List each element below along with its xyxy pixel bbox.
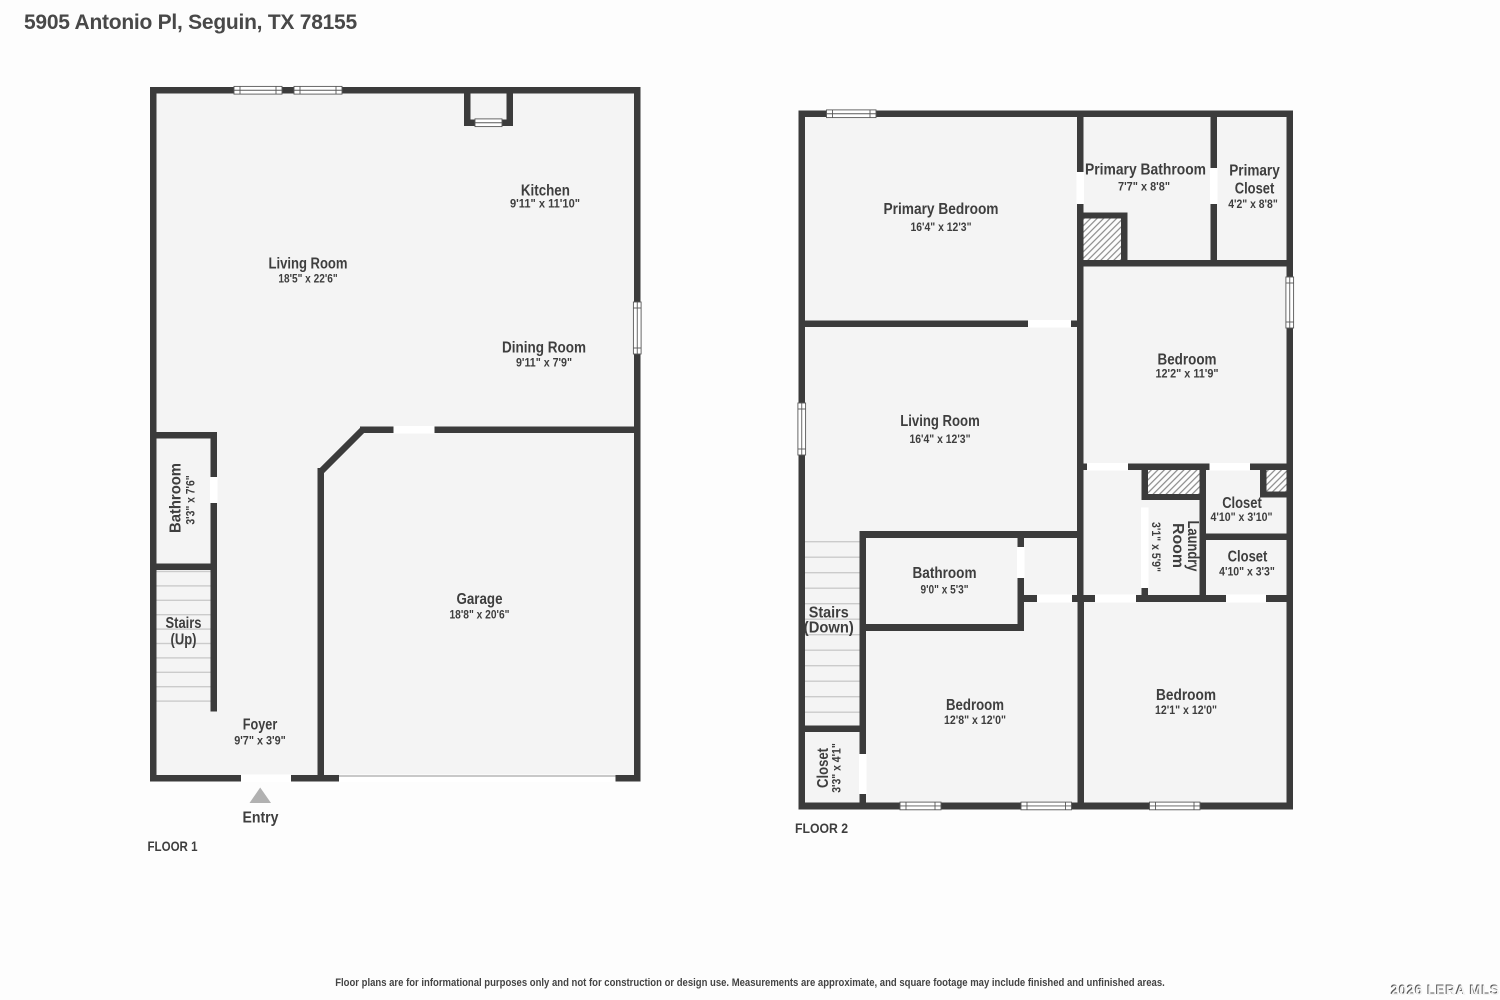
svg-text:7'7" x 8'8": 7'7" x 8'8" — [1118, 182, 1170, 194]
svg-text:Foyer: Foyer — [243, 717, 278, 734]
svg-text:4'10" x 3'10": 4'10" x 3'10" — [1211, 512, 1273, 524]
svg-text:Living Room: Living Room — [269, 256, 348, 273]
svg-text:12'8" x 12'0": 12'8" x 12'0" — [944, 715, 1006, 727]
svg-text:Primary: Primary — [1229, 163, 1280, 180]
svg-text:3'1" x 5'9": 3'1" x 5'9" — [1149, 522, 1161, 572]
svg-text:Garage: Garage — [457, 591, 503, 608]
svg-text:FLOOR 2: FLOOR 2 — [795, 820, 848, 836]
svg-text:Dining Room: Dining Room — [502, 339, 586, 356]
svg-text:Closet: Closet — [1228, 549, 1268, 566]
svg-text:3'3" x 4'1": 3'3" x 4'1" — [832, 743, 844, 793]
svg-text:Bathroom: Bathroom — [913, 565, 977, 582]
svg-text:16'4" x 12'3": 16'4" x 12'3" — [911, 222, 972, 234]
svg-text:9'7" x 3'9": 9'7" x 3'9" — [234, 736, 286, 748]
svg-text:12'2" x 11'9": 12'2" x 11'9" — [1156, 369, 1219, 381]
svg-text:3'3" x 7'6": 3'3" x 7'6" — [186, 475, 198, 524]
svg-text:18'8" x 20'6": 18'8" x 20'6" — [450, 609, 510, 621]
svg-text:Bathroom: Bathroom — [168, 463, 185, 533]
svg-text:9'0" x 5'3": 9'0" x 5'3" — [921, 585, 969, 597]
svg-text:4'2" x 8'8": 4'2" x 8'8" — [1228, 199, 1278, 211]
svg-text:Primary Bathroom: Primary Bathroom — [1085, 162, 1206, 179]
svg-text:Kitchen: Kitchen — [521, 183, 570, 200]
svg-text:Entry: Entry — [243, 810, 279, 827]
svg-text:(Down): (Down) — [804, 620, 854, 637]
svg-text:Bedroom: Bedroom — [1156, 687, 1216, 704]
svg-text:16'4" x 12'3": 16'4" x 12'3" — [910, 434, 971, 446]
svg-text:4'10" x 3'3": 4'10" x 3'3" — [1219, 566, 1275, 578]
svg-text:FLOOR 1: FLOOR 1 — [148, 838, 198, 854]
svg-text:Bedroom: Bedroom — [946, 697, 1004, 714]
svg-text:Living Room: Living Room — [900, 413, 980, 430]
svg-text:9'11" x 11'10": 9'11" x 11'10" — [510, 199, 580, 211]
svg-text:Bedroom: Bedroom — [1158, 352, 1217, 369]
svg-text:(Up): (Up) — [171, 632, 197, 649]
svg-text:9'11" x 7'9": 9'11" x 7'9" — [516, 357, 572, 369]
svg-text:Stairs: Stairs — [166, 615, 202, 632]
svg-text:18'5" x 22'6": 18'5" x 22'6" — [278, 273, 337, 285]
svg-text:Closet: Closet — [1235, 181, 1275, 198]
svg-text:Closet: Closet — [1222, 495, 1262, 512]
svg-text:12'1" x 12'0": 12'1" x 12'0" — [1155, 705, 1217, 717]
svg-text:Room: Room — [1169, 523, 1186, 568]
svg-text:Primary Bedroom: Primary Bedroom — [884, 201, 999, 218]
svg-text:Closet: Closet — [815, 748, 832, 788]
